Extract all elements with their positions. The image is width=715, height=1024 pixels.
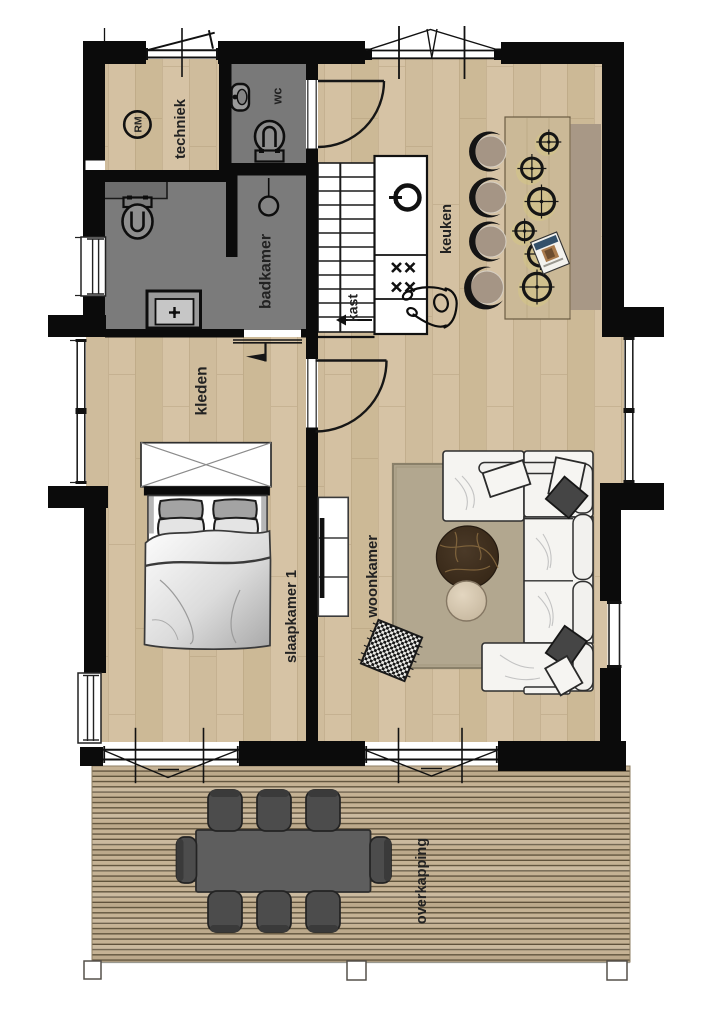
svg-text:overkapping: overkapping [414,838,430,924]
svg-text:badkamer: badkamer [258,234,275,309]
svg-text:techniek: techniek [173,98,189,159]
svg-text:kleden: kleden [193,366,210,415]
svg-text:wc: wc [270,88,284,106]
svg-text:keuken: keuken [439,204,455,254]
svg-text:kast: kast [344,294,360,322]
svg-text:slaapkamer 1: slaapkamer 1 [284,570,300,663]
svg-text:woonkamer: woonkamer [365,535,381,619]
svg-text:RM: RM [132,116,144,133]
